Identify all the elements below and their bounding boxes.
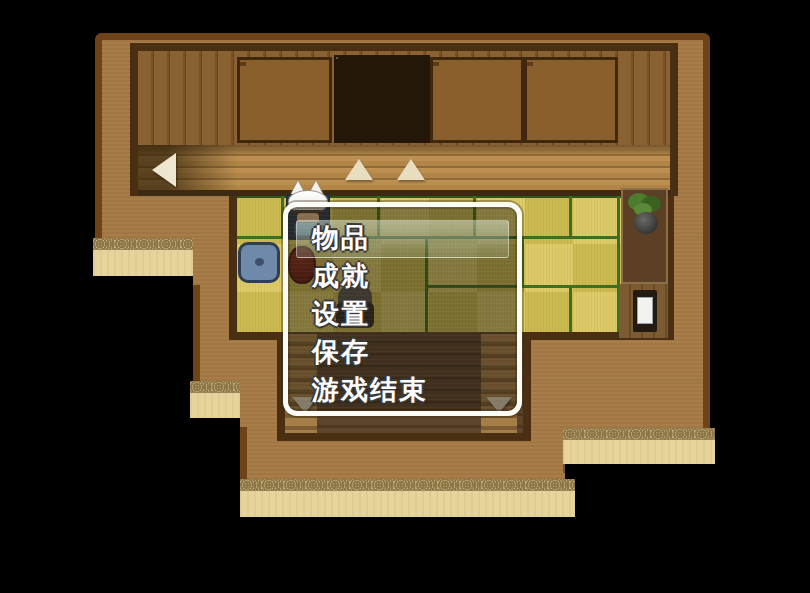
- path-surface: [563, 440, 715, 464]
- closet-cabinet-1: [237, 57, 332, 143]
- entry-frame-right: [523, 332, 531, 441]
- room-frame-left: [130, 43, 138, 196]
- path-surface: [240, 491, 575, 517]
- shoji-doors: [334, 55, 430, 143]
- pause-menu-window: 物品 成就 设置 保存 游戏结束: [283, 202, 522, 416]
- up-arrow-icon: [345, 159, 373, 180]
- path-ornament-border: [240, 479, 575, 491]
- entry-frame-bottom: [277, 433, 531, 441]
- left-arrow-icon: [152, 153, 176, 187]
- blue-cushion: [238, 242, 280, 283]
- closet-cabinet-2: [430, 57, 524, 143]
- wall-border-left3: [240, 427, 247, 479]
- up-arrow-icon: [397, 159, 425, 180]
- stone-path-left-lower: [190, 381, 240, 427]
- room-frame-right: [670, 43, 678, 196]
- tatami-seam: [569, 196, 572, 239]
- path-ledge: [563, 464, 715, 473]
- stone-path-right: [563, 428, 715, 473]
- wall-border-top: [95, 33, 710, 40]
- menu-item-achievements[interactable]: 成就: [296, 257, 509, 295]
- path-surface: [190, 393, 240, 418]
- stone-path-bottom: [240, 479, 575, 526]
- cabinet-door: [433, 62, 437, 66]
- menu-item-game-end[interactable]: 游戏结束: [296, 371, 509, 409]
- menu-item-items[interactable]: 物品: [296, 219, 509, 257]
- tatami-frame-left: [229, 196, 237, 340]
- tatami-frame-bottom-l: [229, 332, 277, 340]
- path-ornament-border: [563, 428, 715, 440]
- stone-path-left: [93, 238, 193, 285]
- cabinet-door: [240, 62, 244, 66]
- path-ledge: [240, 517, 575, 526]
- game-screen: 物品 成就 设置 保存 游戏结束: [0, 0, 810, 593]
- wall-border-left: [95, 33, 102, 238]
- shrine-screen: [637, 297, 653, 324]
- shoji-door-right: [336, 57, 338, 59]
- path-ledge: [93, 276, 193, 285]
- path-ornament-border: [190, 381, 240, 393]
- cabinet-door: [527, 62, 531, 66]
- wall-border-right: [703, 33, 710, 428]
- tatami-seam: [569, 287, 572, 332]
- menu-item-save[interactable]: 保存: [296, 333, 509, 371]
- path-ornament-border: [93, 238, 193, 250]
- wall-border-left2: [193, 285, 200, 381]
- path-surface: [93, 250, 193, 276]
- menu-item-settings[interactable]: 设置: [296, 295, 509, 333]
- closet-cabinet-3: [524, 57, 618, 143]
- path-ledge: [190, 418, 240, 427]
- room-frame-top: [130, 43, 678, 51]
- bonsai-pot: [634, 212, 658, 234]
